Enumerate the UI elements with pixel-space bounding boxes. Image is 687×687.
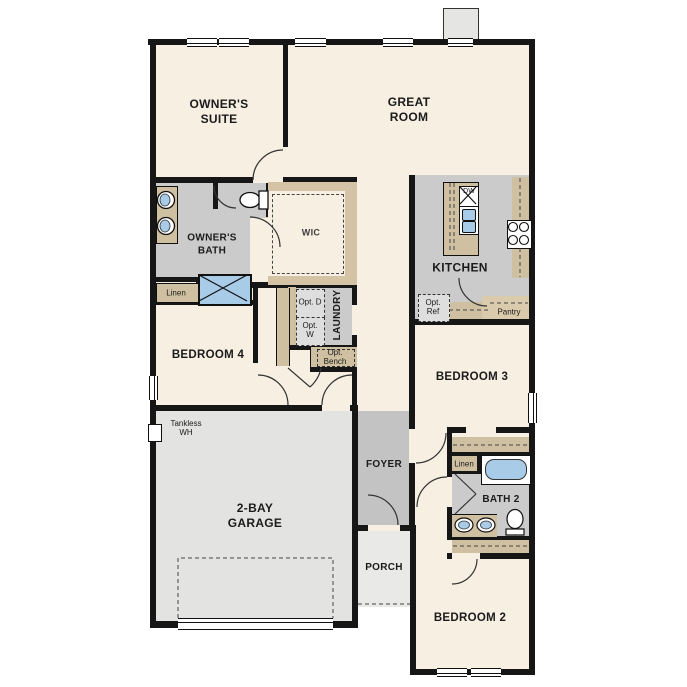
room-label-bedroom3: BEDROOM 3 <box>412 370 532 384</box>
label-opt-ref: Opt. Ref <box>421 298 445 316</box>
label-linen-bath2: Linen <box>449 459 479 468</box>
door-arc-front-door <box>368 495 398 525</box>
door-arc-owners-bath <box>250 217 280 247</box>
label-opt-bench: Opt. Bench <box>319 348 351 366</box>
room-label-garage: 2-BAY GARAGE <box>219 501 291 531</box>
room-label-great-room: GREAT ROOM <box>374 95 444 125</box>
label-dishwasher: DW <box>459 188 479 196</box>
door-arc-bedroom2 <box>452 559 477 584</box>
room-label-laundry: LAUNDRY <box>332 280 345 350</box>
door-arc-garage-entry <box>322 375 352 405</box>
room-label-bedroom2: BEDROOM 2 <box>410 611 530 625</box>
room-label-bedroom4: BEDROOM 4 <box>148 348 268 362</box>
room-label-owners-bath: OWNER'S BATH <box>181 233 243 258</box>
label-opt-washer: Opt. W <box>298 321 322 339</box>
garage-bay-dash <box>178 558 333 618</box>
door-arc-pantry <box>459 278 487 306</box>
door-arc-bath2 <box>417 477 447 507</box>
label-linen-owner: Linen <box>157 288 195 297</box>
room-label-owners-suite: OWNER'S SUITE <box>173 97 265 127</box>
room-label-bath2: BATH 2 <box>471 494 531 507</box>
room-label-wic: WIC <box>291 227 331 238</box>
island-dash <box>450 183 454 253</box>
room-label-kitchen: KITCHEN <box>415 261 505 276</box>
floor-plan: OWNER'S SUITE GREAT ROOM OWNER'S BATH WI… <box>0 0 687 687</box>
label-tankless-wh: Tankless WH <box>163 419 209 437</box>
shower-x <box>199 275 247 301</box>
room-label-porch: PORCH <box>354 562 414 575</box>
door-arc-toilet-room <box>214 186 236 208</box>
label-pantry: Pantry <box>489 307 529 316</box>
label-opt-dryer: Opt. D <box>298 297 322 306</box>
door-arc-bedroom4 <box>258 375 288 405</box>
door-arc-bedroom3 <box>416 433 446 463</box>
door-arc-owners-suite <box>253 150 283 180</box>
room-label-foyer: FOYER <box>354 459 414 472</box>
door-laundry <box>288 368 321 387</box>
